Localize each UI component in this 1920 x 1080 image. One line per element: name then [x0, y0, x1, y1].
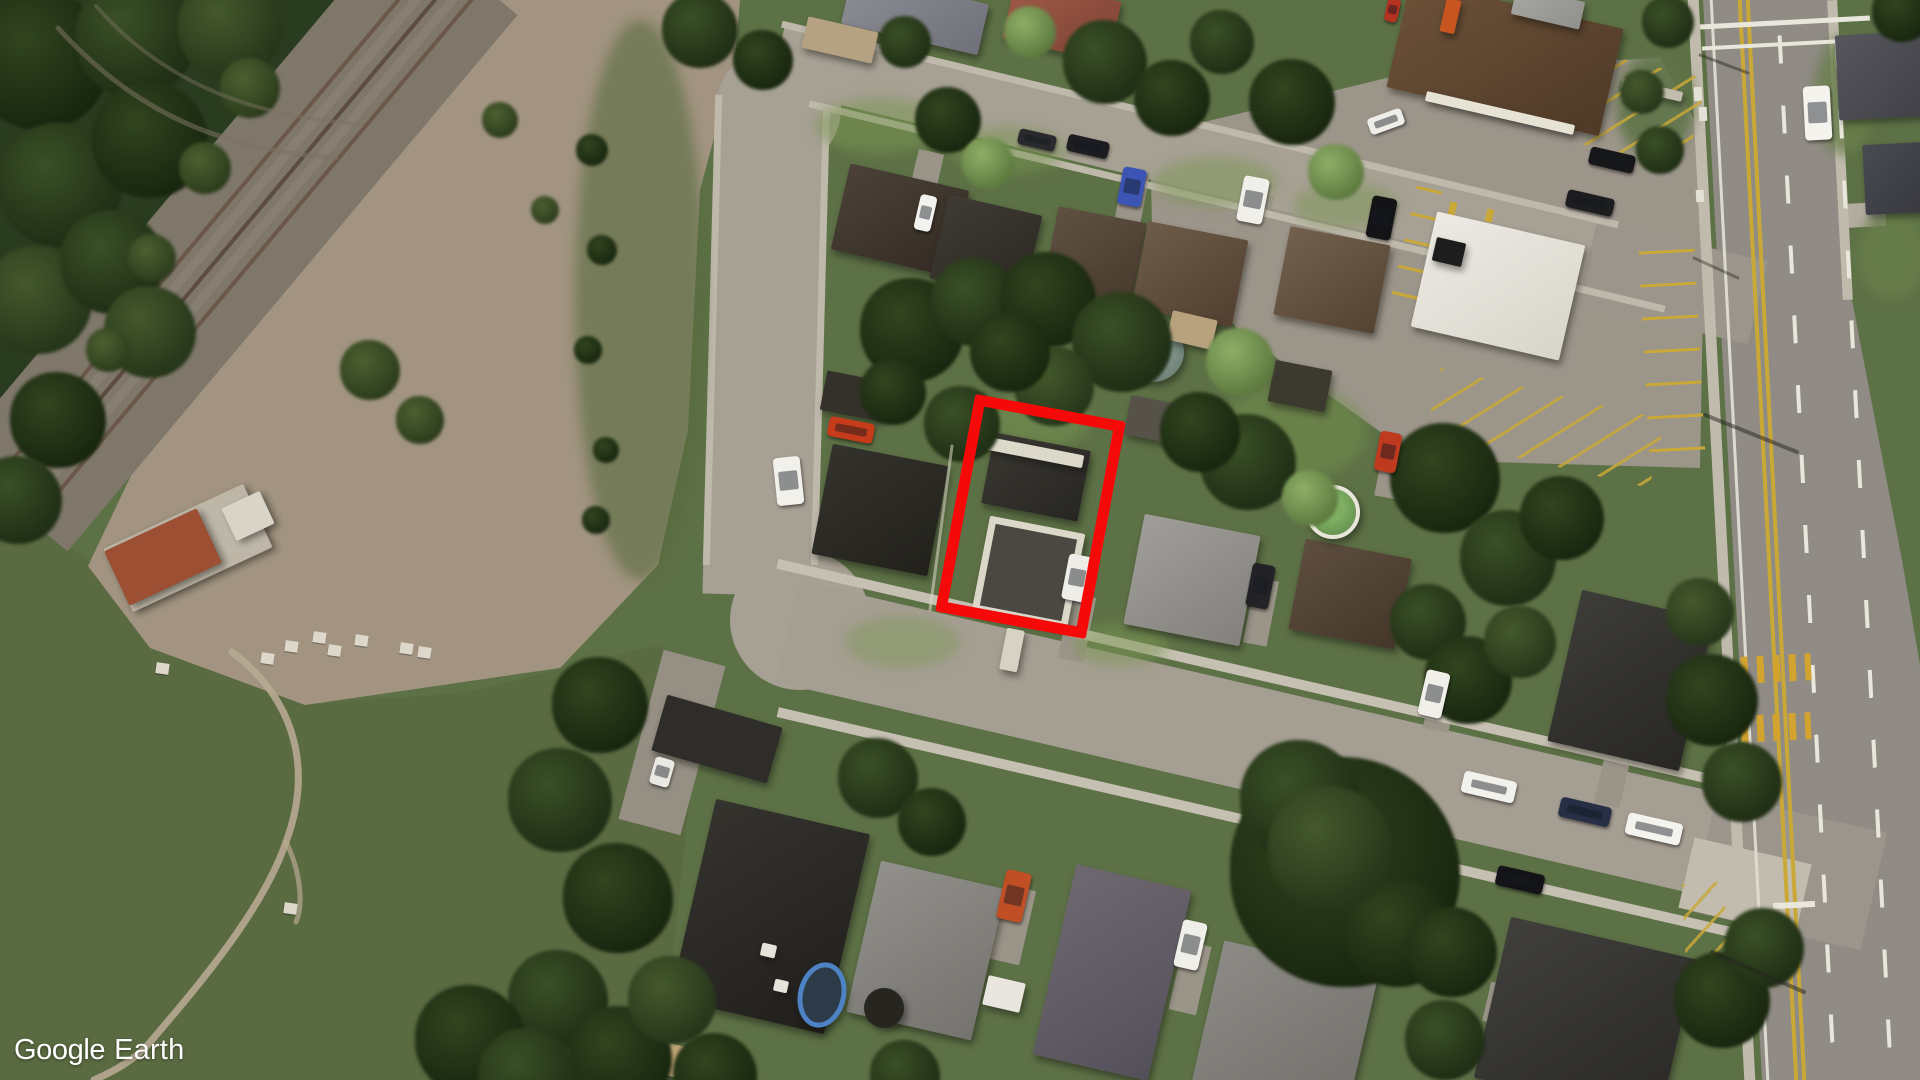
concrete-pad	[399, 642, 413, 655]
tree	[970, 312, 1050, 392]
tree	[1405, 1000, 1485, 1080]
lawn-patch	[1857, 210, 1920, 300]
house-roof-south	[1474, 916, 1696, 1080]
map-canvas[interactable]: Google Earth	[0, 0, 1920, 1080]
car-windshield	[1003, 884, 1025, 906]
tree	[628, 956, 716, 1044]
tree	[1268, 786, 1392, 910]
house-roof-east	[1862, 141, 1920, 215]
car-windshield	[1470, 779, 1508, 795]
car-orange	[827, 416, 876, 444]
car-windshield	[1024, 134, 1051, 146]
tree	[128, 234, 176, 282]
tree	[1520, 476, 1604, 560]
concrete-pad	[312, 631, 326, 644]
concrete-pad	[155, 662, 169, 675]
tree	[482, 102, 518, 138]
tree	[860, 359, 926, 425]
tree	[340, 340, 400, 400]
watermark-brand: Google	[14, 1034, 105, 1067]
concrete-pad	[260, 652, 274, 665]
tree	[1160, 392, 1240, 472]
tree	[574, 336, 602, 364]
car-windshield	[1567, 804, 1603, 819]
tree	[870, 1040, 940, 1080]
car-windshield	[1573, 196, 1606, 210]
tree	[1282, 470, 1338, 526]
concrete-pad	[327, 644, 341, 657]
tree	[962, 137, 1014, 189]
van-white-arterial	[1802, 85, 1832, 140]
car-windshield	[1503, 872, 1537, 887]
car-windshield	[654, 765, 670, 779]
tree	[1407, 907, 1497, 997]
car-windshield	[1371, 208, 1391, 227]
car-black-street	[1494, 865, 1545, 895]
lawn-patch	[845, 616, 960, 668]
tree	[582, 506, 610, 534]
house-roof-east	[1834, 30, 1920, 120]
car-windshield	[1373, 114, 1398, 128]
tree	[1724, 908, 1804, 988]
car-red	[1383, 0, 1401, 23]
yard-item	[759, 942, 777, 958]
tree	[563, 843, 673, 953]
car-windshield	[1251, 576, 1270, 595]
car-windshield	[1243, 189, 1264, 210]
tree	[587, 235, 617, 265]
house-roof-west-neighbor	[811, 444, 948, 576]
tree	[1249, 59, 1335, 145]
tree	[508, 748, 612, 852]
house-roof-south	[1033, 864, 1192, 1080]
car-windshield	[1387, 4, 1398, 15]
tree	[1308, 144, 1364, 200]
car-windshield	[778, 470, 798, 490]
trampoline	[864, 988, 904, 1028]
tree	[1666, 654, 1758, 746]
tree	[86, 328, 130, 372]
tree	[879, 16, 931, 68]
tree	[179, 142, 231, 194]
lawn-patch	[575, 20, 705, 580]
car-white	[772, 456, 804, 507]
tree	[593, 437, 619, 463]
car-windshield	[1123, 178, 1142, 195]
tree	[1484, 606, 1556, 678]
car-windshield	[1073, 139, 1102, 152]
car-windshield	[1180, 934, 1201, 956]
tree	[220, 58, 280, 118]
tree	[1642, 0, 1694, 48]
tree	[1004, 6, 1056, 58]
utility-trailer	[982, 975, 1026, 1013]
tree	[576, 134, 608, 166]
concrete-pad	[284, 640, 298, 653]
car-windshield	[1635, 820, 1674, 837]
concrete-pad	[354, 634, 368, 647]
tree	[733, 30, 793, 90]
tree	[10, 372, 106, 468]
tree	[1134, 60, 1210, 136]
tree	[552, 657, 648, 753]
tree	[531, 196, 559, 224]
tree	[1206, 328, 1274, 396]
watermark-product: Earth	[114, 1034, 184, 1067]
car-windshield	[1379, 443, 1397, 461]
house-roof	[1273, 226, 1390, 334]
tree	[1620, 70, 1664, 114]
tree	[1636, 126, 1684, 174]
car-windshield	[1596, 153, 1628, 167]
car-windshield	[1424, 683, 1444, 704]
tree	[1666, 578, 1734, 646]
tree	[1190, 10, 1254, 74]
car-windshield	[1807, 102, 1826, 123]
house-roof-east-neighbor	[1123, 514, 1260, 646]
road-glyph	[1699, 107, 1708, 121]
tree	[1702, 742, 1782, 822]
road-glyph	[1696, 190, 1705, 202]
tree	[396, 396, 444, 444]
concrete-pad	[283, 902, 297, 915]
tree	[898, 788, 966, 856]
concrete-pad	[417, 646, 431, 659]
car-windshield	[835, 423, 867, 436]
google-earth-watermark: Google Earth	[14, 1034, 184, 1067]
car-windshield	[918, 205, 932, 221]
